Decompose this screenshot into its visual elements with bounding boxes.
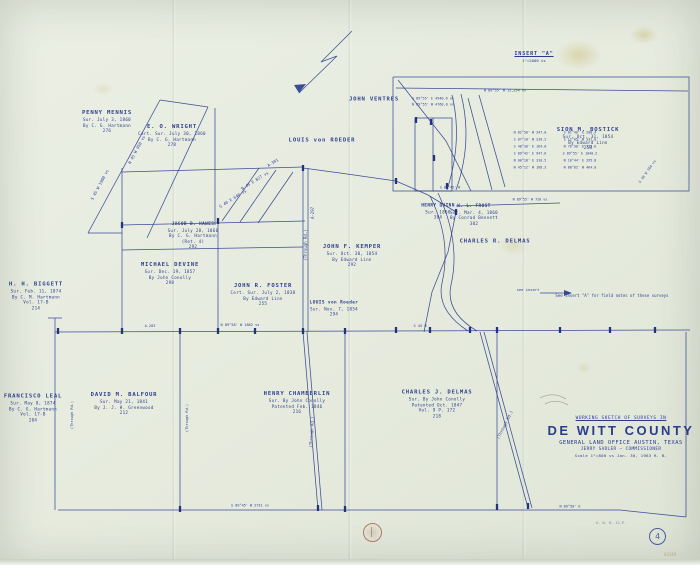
insert-a-scale: 1"=2000 vs bbox=[498, 58, 570, 63]
survey-note-line: By C. G. Hartmann bbox=[168, 233, 219, 238]
survey-name: W. L. FROST bbox=[450, 204, 498, 210]
bearing-note: N 00°18' E 310.5 bbox=[514, 159, 547, 162]
survey-note-line: 298 bbox=[141, 280, 199, 285]
survey-note-line: 292 bbox=[168, 244, 219, 249]
archive-corner-code: 63249 bbox=[664, 552, 676, 557]
bearing-note: A-283 bbox=[145, 325, 156, 329]
survey-name: DAVID M. BALFOUR bbox=[91, 392, 158, 399]
bearing-note: N 10°44' E 295.8 bbox=[564, 159, 597, 162]
bearing-note: (Through Rd.) bbox=[71, 401, 75, 429]
bearing-note: (Through Rd.) bbox=[309, 416, 315, 448]
survey-note-line: Sur. May 21, 1841 bbox=[91, 399, 158, 404]
survey-note-line: Sur. Oct. 30, 1854 bbox=[323, 251, 381, 256]
bearing-note: (Through Rd.) bbox=[496, 410, 514, 440]
bearing-note: S 45 W 1900 vs bbox=[90, 169, 109, 201]
map-sheet: PENNY MENNISSur. July 3, 1860By C. G. Ha… bbox=[0, 0, 700, 565]
survey-name: JOHN F. KEMPER bbox=[323, 244, 381, 251]
county-title: DE WITT COUNTY bbox=[536, 423, 700, 438]
map-labels: PENNY MENNISSur. July 3, 1860By C. G. Ha… bbox=[0, 0, 700, 565]
survey-note-line: Sur. May 8, 1874 bbox=[4, 401, 62, 406]
bearing-note: S 20 W 164 vs bbox=[639, 160, 658, 184]
survey-label: LOUIS von ROEDER bbox=[289, 137, 356, 144]
survey-note-line: 212 bbox=[91, 410, 158, 415]
bearing-note: S 89°42' E 947.6 bbox=[514, 152, 547, 155]
bearing-note: S 12°05' W 331.0 bbox=[564, 138, 597, 141]
survey-note-line: 204 bbox=[4, 417, 62, 422]
survey-name: JOHN R. FOSTER bbox=[231, 283, 296, 290]
survey-note-line: 294 bbox=[310, 312, 359, 317]
bearing-note: See insert "A" for field notes of these … bbox=[555, 294, 668, 298]
survey-note-line: Cert. Sur. July 2, 1838 bbox=[231, 290, 296, 295]
bearing-note: N 89°55' W 12,354 vs bbox=[484, 89, 526, 93]
bearing-note: S 45 W bbox=[414, 325, 427, 329]
survey-name: PENNY MENNIS bbox=[82, 110, 132, 117]
insert-a-title: INSERT "A" bbox=[498, 51, 570, 57]
survey-label: PENNY MENNISSur. July 3, 1860By C. G. Ha… bbox=[82, 110, 132, 134]
survey-label: HENRY QUINNSur. 1860304 bbox=[421, 204, 454, 221]
bearing-note: N 89°55' W 4760.0 vs bbox=[412, 103, 454, 107]
survey-name: LOUIS von ROEDER bbox=[289, 137, 356, 144]
insert-a-label: INSERT "A" 1"=2000 vs bbox=[498, 51, 570, 63]
bearing-note: N 89°50' E bbox=[559, 505, 580, 509]
survey-label: FRANCISCO LEALSur. May 8, 1874By C. G. H… bbox=[4, 393, 62, 422]
survey-label: JOHN VENTRES bbox=[349, 96, 399, 103]
office-line: GENERAL LAND OFFICE AUSTIN, TEXAS bbox=[536, 440, 700, 446]
bearing-note: S 40 E 640 vs bbox=[219, 189, 248, 209]
bearing-note: N 49 E 827 vs bbox=[241, 171, 270, 191]
bearing-note: N 45°12' W 168.3 bbox=[514, 166, 547, 169]
bearing-note: S 81°40' E 288.4 bbox=[564, 131, 597, 134]
survey-name: MICHAEL DEVINE bbox=[141, 262, 199, 269]
survey-name: E. O. WRIGHT bbox=[138, 124, 206, 131]
survey-note-line: Sur. July 3, 1860 bbox=[82, 117, 132, 122]
survey-note-line: 276 bbox=[82, 128, 132, 133]
title-subheading: WORKING SKETCH OF SURVEYS IN bbox=[536, 416, 700, 421]
red-seal-stamp bbox=[363, 523, 382, 542]
survey-name: H. H. BIGGETT bbox=[9, 281, 63, 288]
survey-label: DAVID M. BALFOURSur. May 21, 1841By J. J… bbox=[91, 392, 158, 416]
under-border-note: A. W. B. 12-P. bbox=[596, 521, 626, 525]
commissioner-line: JERRY SADLER — COMMISSIONER bbox=[536, 447, 700, 452]
bearing-note: S 89°45' W bbox=[440, 186, 460, 189]
survey-label: E. O. WRIGHTCert. Sur. July 30, 1860By C… bbox=[138, 124, 206, 148]
survey-note-line: 292 bbox=[323, 262, 381, 267]
survey-note-line: 278 bbox=[138, 142, 206, 147]
bearing-note: A-297 bbox=[311, 207, 315, 219]
survey-label: JOHN R. FOSTERCert. Sur. July 2, 1838By … bbox=[231, 283, 296, 307]
survey-note-line: Sur. By John Conolly bbox=[264, 398, 331, 403]
survey-note-line: Sur. Feb. 11, 1874 bbox=[9, 289, 63, 294]
bearing-note: N 82°50' W 347.0 bbox=[514, 131, 547, 134]
survey-name: CHARLES R. DELMAS bbox=[460, 238, 531, 245]
survey-label: LOUIS von RoederSur. Nov. 7, 1854294 bbox=[310, 301, 359, 318]
survey-name: HENRY CHAMBERLIN bbox=[264, 391, 331, 398]
bearing-note: N 89°58' W 1862 vs bbox=[221, 324, 260, 328]
survey-label: HENRY CHAMBERLINSur. By John ConollyPate… bbox=[264, 391, 331, 415]
survey-name: JACOB B. HAWES bbox=[168, 222, 219, 228]
survey-label: H. H. BIGGETTSur. Feb. 11, 1874By C. M. … bbox=[9, 281, 63, 310]
bearing-note: (Through Rd.) bbox=[186, 404, 190, 432]
survey-label: W. L. FROSTSur. Mar. 4, 1860By Conrad Be… bbox=[450, 204, 498, 226]
bearing-note: S 89°55' E 4940.6 vs bbox=[412, 97, 454, 101]
sheet-number-badge: 4 bbox=[649, 528, 666, 545]
survey-label: JOHN F. KEMPERSur. Oct. 30, 1854By Edwar… bbox=[323, 244, 381, 268]
survey-label: CHARLES J. DELMASSur. By John ConollyPat… bbox=[402, 389, 473, 418]
bearing-note: N 89°55' W 720 vs bbox=[513, 198, 548, 201]
survey-note-line: 218 bbox=[402, 413, 473, 418]
bearing-note: N 76°30' E 213.6 bbox=[564, 145, 597, 148]
survey-name: JOHN VENTRES bbox=[349, 96, 399, 103]
bearing-note: S 89°45' W 2731 vs bbox=[231, 504, 269, 508]
survey-note-line: 304 bbox=[421, 215, 454, 220]
survey-note-line: 255 bbox=[231, 301, 296, 306]
bearing-note: (Through Rd.) bbox=[304, 229, 308, 260]
survey-label: CHARLES R. DELMAS bbox=[460, 238, 531, 245]
survey-note-line: 214 bbox=[9, 305, 63, 310]
bearing-note: N 88°02' W 464.0 bbox=[564, 166, 597, 169]
bearing-note: S 07°10' W 310.2 bbox=[514, 138, 547, 141]
scale-date-line: Scale 1"=800 vs Jan. 30, 1963 R. B. bbox=[536, 453, 700, 458]
survey-note-line: Sur. By John Conolly bbox=[402, 397, 473, 402]
survey-note-line: Sur. Dec. 19, 1857 bbox=[141, 269, 199, 274]
survey-note-line: By Conrad Bennett bbox=[450, 215, 498, 220]
bearing-note: S 89°55' E 1040.2 bbox=[563, 152, 598, 155]
survey-note-line: Cert. Sur. July 30, 1860 bbox=[138, 131, 206, 136]
survey-label: JACOB B. HAWESSur. July 28, 1860By C. G.… bbox=[168, 222, 219, 250]
survey-name: HENRY QUINN bbox=[421, 204, 454, 210]
survey-label: MICHAEL DEVINESur. Dec. 19, 1857By John … bbox=[141, 262, 199, 286]
survey-note-line: 302 bbox=[450, 221, 498, 226]
survey-name: LOUIS von Roeder bbox=[310, 301, 359, 307]
bearing-note: N 45 W 950 vs bbox=[128, 135, 146, 165]
bearing-note: S 48°30' E 164.0 bbox=[514, 145, 547, 148]
bearing-note: see insert bbox=[517, 288, 540, 292]
title-block: WORKING SKETCH OF SURVEYS IN DE WITT COU… bbox=[536, 416, 700, 458]
bearing-note: A-301 bbox=[267, 158, 279, 168]
survey-note-line: 216 bbox=[264, 409, 331, 414]
survey-name: FRANCISCO LEAL bbox=[4, 393, 62, 400]
paper-bottom-edge bbox=[0, 559, 700, 565]
survey-name: CHARLES J. DELMAS bbox=[402, 389, 473, 396]
